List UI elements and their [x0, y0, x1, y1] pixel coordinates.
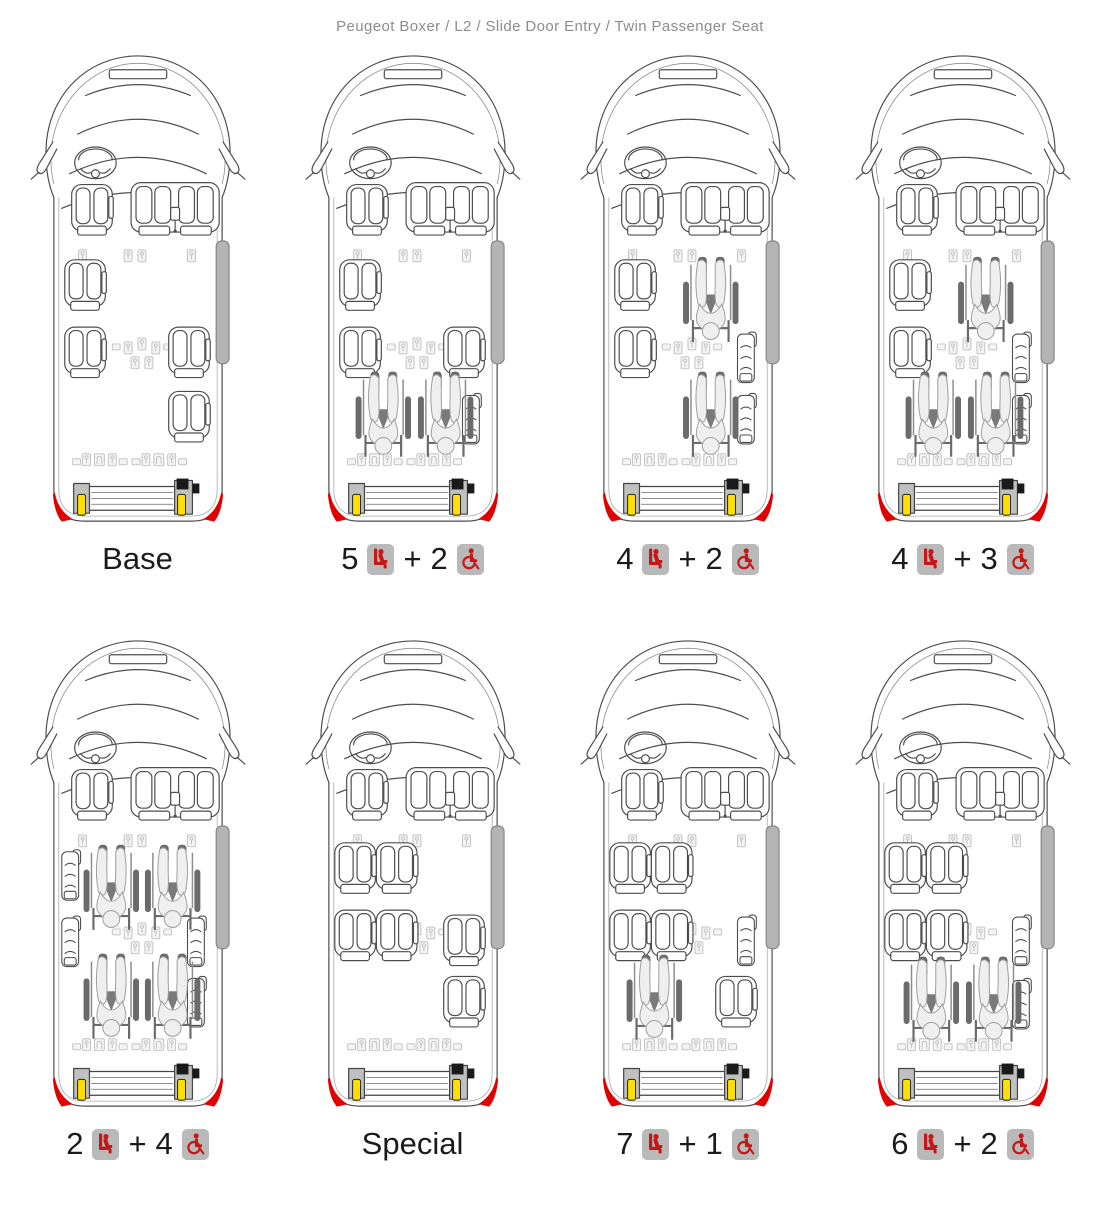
- van-config-cell-special: Special: [275, 620, 550, 1205]
- seat-icon: [917, 1129, 944, 1160]
- wheelchair-icon: [457, 544, 484, 575]
- van-floorplan-4-2: [578, 47, 798, 532]
- van-floorplan-7-1: [578, 632, 798, 1117]
- wheelchair-icon: [1007, 1129, 1034, 1160]
- config-name: Base: [102, 541, 173, 577]
- seat-count: 4: [616, 541, 633, 577]
- wheelchair-icon: [182, 1129, 209, 1160]
- wheelchair-count: 3: [981, 541, 998, 577]
- config-counts: 2 + 4: [66, 1126, 209, 1162]
- plus-sign: +: [953, 541, 971, 577]
- config-counts: 4 + 3: [891, 541, 1034, 577]
- van-config-cell-base: Base: [0, 35, 275, 620]
- van-floorplan-4-3: [853, 47, 1073, 532]
- wheelchair-icon: [732, 1129, 759, 1160]
- van-config-label: 7 + 1: [616, 1119, 759, 1169]
- wheelchair-count: 2: [706, 541, 723, 577]
- van-config-label: 2 + 4: [66, 1119, 209, 1169]
- van-config-cell-4-2: 4 + 2: [550, 35, 825, 620]
- plus-sign: +: [403, 541, 421, 577]
- van-config-label: 4 + 3: [891, 534, 1034, 584]
- seat-count: 7: [616, 1126, 633, 1162]
- van-floorplan-base: [28, 47, 248, 532]
- seat-icon: [917, 544, 944, 575]
- config-counts: 7 + 1: [616, 1126, 759, 1162]
- config-counts: 4 + 2: [616, 541, 759, 577]
- van-config-cell-7-1: 7 + 1: [550, 620, 825, 1205]
- wheelchair-count: 1: [706, 1126, 723, 1162]
- plus-sign: +: [128, 1126, 146, 1162]
- plus-sign: +: [678, 1126, 696, 1162]
- seat-icon: [92, 1129, 119, 1160]
- config-counts: 6 + 2: [891, 1126, 1034, 1162]
- wheelchair-count: 2: [431, 541, 448, 577]
- van-floorplan-6-2: [853, 632, 1073, 1117]
- van-config-label: 5 + 2: [341, 534, 484, 584]
- van-config-cell-4-3: 4 + 3: [825, 35, 1100, 620]
- van-config-label: Base: [102, 534, 173, 584]
- seat-count: 2: [66, 1126, 83, 1162]
- plus-sign: +: [953, 1126, 971, 1162]
- van-config-cell-2-4: 2 + 4: [0, 620, 275, 1205]
- seat-count: 4: [891, 541, 908, 577]
- van-config-cell-5-2: 5 + 2: [275, 35, 550, 620]
- van-floorplan-2-4: [28, 632, 248, 1117]
- wheelchair-count: 4: [156, 1126, 173, 1162]
- van-floorplan-5-2: [303, 47, 523, 532]
- seat-count: 6: [891, 1126, 908, 1162]
- seat-icon: [642, 544, 669, 575]
- van-config-label: 4 + 2: [616, 534, 759, 584]
- van-config-label: 6 + 2: [891, 1119, 1034, 1169]
- plus-sign: +: [678, 541, 696, 577]
- seat-icon: [642, 1129, 669, 1160]
- page-title: Peugeot Boxer / L2 / Slide Door Entry / …: [0, 0, 1100, 35]
- seat-count: 5: [341, 541, 358, 577]
- config-name: Special: [362, 1126, 464, 1162]
- seat-icon: [367, 544, 394, 575]
- van-config-grid: Base 5 + 2 4: [0, 35, 1100, 1205]
- wheelchair-count: 2: [981, 1126, 998, 1162]
- van-floorplan-special: [303, 632, 523, 1117]
- van-config-cell-6-2: 6 + 2: [825, 620, 1100, 1205]
- van-config-label: Special: [362, 1119, 464, 1169]
- config-counts: 5 + 2: [341, 541, 484, 577]
- wheelchair-icon: [1007, 544, 1034, 575]
- wheelchair-icon: [732, 544, 759, 575]
